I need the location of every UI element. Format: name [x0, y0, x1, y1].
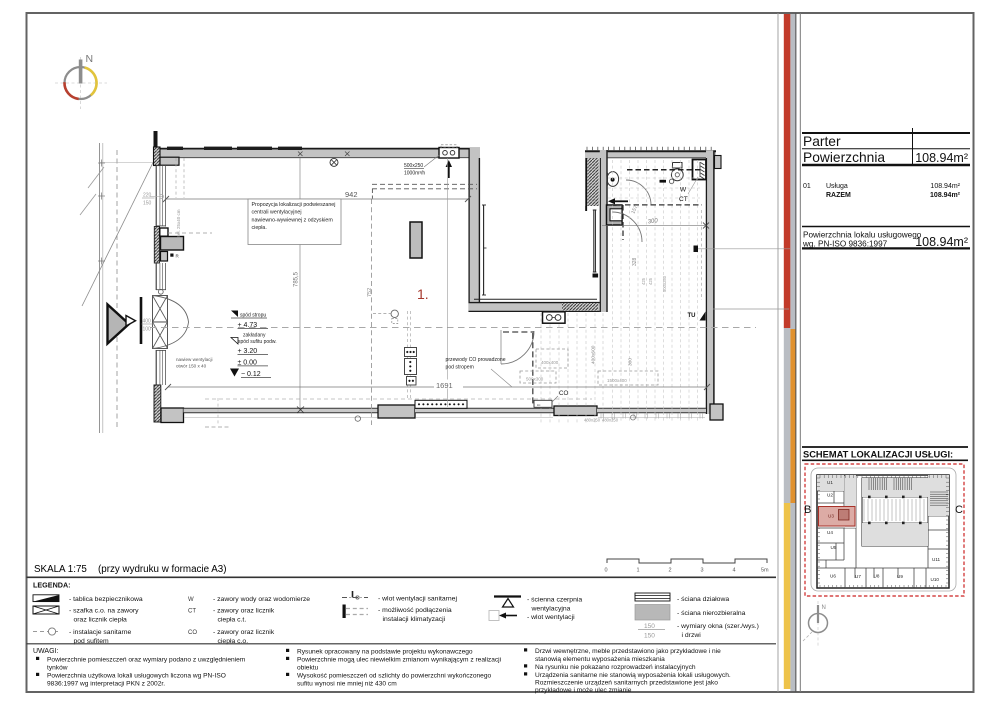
svg-text:Powierzchnia lokalu usługowego: Powierzchnia lokalu usługowego [803, 231, 922, 240]
svg-text:Urządzenia sanitarne nie stano: Urządzenia sanitarne nie stanowią wyposa… [535, 672, 731, 679]
svg-text:ciepła.: ciepła. [252, 225, 267, 231]
svg-text:- zawory wody oraz wodomierze: - zawory wody oraz wodomierze [213, 596, 310, 603]
svg-text:- ściana nierozbieralna: - ściana nierozbieralna [677, 610, 746, 617]
svg-text:W: W [188, 597, 194, 603]
svg-text:nawiewno-wywiewnej z odzyskiem: nawiewno-wywiewnej z odzyskiem [252, 217, 334, 223]
svg-text:1500x400: 1500x400 [607, 378, 627, 383]
svg-text:300: 300 [628, 358, 634, 366]
svg-text:TU: TU [688, 313, 696, 319]
svg-text:instalacji klimatyzacji: instalacji klimatyzacji [383, 616, 446, 623]
svg-text:942: 942 [345, 190, 358, 199]
svg-text:- szafka c.o. na zawory: - szafka c.o. na zawory [69, 608, 139, 615]
svg-text:przykładowe i może ulec zmiani: przykładowe i może ulec zmianie [535, 687, 632, 694]
svg-text:400: 400 [143, 319, 152, 325]
svg-text:- wymiary okna (szer./wys.): - wymiary okna (szer./wys.) [677, 623, 759, 630]
svg-text:oraz licznik ciepła: oraz licznik ciepła [74, 617, 127, 624]
svg-text:Usługa: Usługa [826, 183, 848, 190]
svg-text:100: 100 [143, 327, 152, 333]
svg-text:1000m³/h: 1000m³/h [404, 171, 425, 177]
svg-text:500x300: 500x300 [526, 377, 544, 382]
svg-text:wg. PN-ISO 9836:1997: wg. PN-ISO 9836:1997 [802, 240, 888, 249]
svg-text:108.94m²: 108.94m² [915, 235, 968, 249]
svg-text:Powierzchnie pomieszczeń oraz: Powierzchnie pomieszczeń oraz wymiary po… [47, 657, 246, 664]
svg-text:Na rysunku nie pokazano rozpro: Na rysunku nie pokazano rozprowadzeń ins… [535, 664, 696, 671]
svg-text:N: N [86, 53, 94, 65]
svg-text:1: 1 [637, 568, 640, 574]
svg-text:0: 0 [605, 568, 608, 574]
svg-text:U2: U2 [827, 493, 833, 498]
svg-text:Powierzchnia użytkowa lokali u: Powierzchnia użytkowa lokali usługowych … [47, 673, 226, 680]
svg-text:nawiew wentylacji: nawiew wentylacji [176, 357, 213, 362]
svg-text:150: 150 [143, 201, 152, 207]
svg-text:Drzwi wewnętrzne, meble przeds: Drzwi wewnętrzne, meble przedstawiono ja… [535, 648, 721, 655]
svg-text:Rysunek opracowany na podstawi: Rysunek opracowany na podstawie projektu… [297, 649, 473, 656]
svg-text:Powierzchnie mogą ulec niewiel: Powierzchnie mogą ulec niewielkim zmiano… [297, 657, 502, 664]
svg-text:przewody CO prowadzone: przewody CO prowadzone [446, 357, 506, 363]
svg-text:Parter: Parter [803, 134, 841, 149]
svg-text:+ 3.20: + 3.20 [238, 348, 258, 355]
svg-text:spód sufitu podw.: spód sufitu podw. [238, 339, 277, 345]
svg-text:U3: U3 [828, 514, 834, 519]
svg-text:i drzwi: i drzwi [682, 632, 702, 639]
svg-text:U6: U6 [830, 574, 836, 579]
svg-text:108.94m²: 108.94m² [915, 151, 968, 165]
svg-text:400x400: 400x400 [541, 360, 559, 365]
svg-text:4: 4 [733, 568, 736, 574]
svg-text:- możliwość podłączenia: - możliwość podłączenia [378, 607, 452, 614]
svg-text:Bel. 25x40 cm: Bel. 25x40 cm [176, 209, 181, 238]
svg-text:- ścienna czerpnia: - ścienna czerpnia [527, 597, 582, 604]
svg-text:SKALA 1:75: SKALA 1:75 [34, 564, 87, 575]
svg-text:U5: U5 [831, 545, 837, 550]
svg-text:- wlot wentylacji: - wlot wentylacji [527, 614, 575, 621]
svg-text:U8: U8 [874, 574, 880, 579]
svg-text:CT: CT [679, 196, 688, 203]
svg-text:108.94m²: 108.94m² [930, 192, 961, 199]
svg-text:− 0.12: − 0.12 [241, 371, 261, 378]
svg-text:1.: 1. [417, 286, 429, 302]
svg-text:wentylacyjna: wentylacyjna [531, 606, 571, 613]
svg-text:± 0.00: ± 0.00 [238, 360, 258, 367]
svg-text:220: 220 [143, 193, 152, 199]
svg-text:CO: CO [188, 630, 197, 636]
svg-text:C: C [955, 504, 963, 516]
svg-text:150: 150 [644, 633, 655, 640]
svg-text:Wysokość pomieszczeń od szlich: Wysokość pomieszczeń od szlichty do powi… [297, 673, 492, 680]
svg-text:9836:1997 wg interpretacji PKN: 9836:1997 wg interpretacji PKN z 2002r. [47, 681, 165, 688]
svg-text:425: 425 [641, 277, 646, 285]
svg-text:CT: CT [188, 609, 196, 615]
svg-text:centrali wentylacyjnej: centrali wentylacyjnej [252, 210, 302, 216]
svg-text:▪▪▪: ▪▪▪ [537, 403, 540, 407]
svg-text:pod stropem: pod stropem [446, 365, 474, 371]
svg-text:752: 752 [367, 288, 373, 297]
svg-text:328: 328 [632, 257, 638, 266]
svg-text:N: N [822, 605, 826, 611]
svg-text:sufitu wynosi nie mniej niż 43: sufitu wynosi nie mniej niż 430 cm [297, 681, 397, 688]
svg-text:spód stropu: spód stropu [240, 313, 266, 319]
svg-text:ciepła c.t.: ciepła c.t. [218, 617, 247, 624]
svg-text:- zawory oraz licznik: - zawory oraz licznik [213, 629, 275, 636]
svg-text:3: 3 [701, 568, 704, 574]
svg-text:CO: CO [559, 390, 568, 397]
svg-text:SCHEMAT LOKALIZACJI USŁUGI:: SCHEMAT LOKALIZACJI USŁUGI: [803, 449, 953, 459]
svg-text:otwór 150 x 40: otwór 150 x 40 [176, 364, 207, 369]
svg-text:LEGENDA:: LEGENDA: [33, 581, 71, 590]
svg-text:- instalacje sanitarne: - instalacje sanitarne [69, 629, 132, 636]
svg-text:5m: 5m [761, 568, 769, 574]
svg-text:U11: U11 [932, 557, 941, 562]
svg-text:- ściana działowa: - ściana działowa [677, 596, 729, 603]
svg-text:Rozmieszczenie urządzeń sanita: Rozmieszczenie urządzeń sanitarnych prze… [535, 680, 718, 687]
svg-text:U7: U7 [855, 574, 861, 579]
svg-text:108.94m²: 108.94m² [930, 183, 960, 190]
svg-text:W: W [680, 187, 687, 194]
svg-text:Powierzchnia: Powierzchnia [803, 150, 885, 165]
svg-text:+ 4.73: + 4.73 [238, 322, 258, 329]
svg-text:150: 150 [644, 623, 655, 630]
svg-text:500x250: 500x250 [662, 275, 667, 292]
svg-text:01: 01 [803, 183, 811, 190]
svg-text:U1: U1 [827, 480, 833, 485]
svg-text:Propozycja lokalizacji podwies: Propozycja lokalizacji podwieszanej [252, 202, 336, 208]
svg-text:UWAGI:: UWAGI: [33, 648, 58, 655]
svg-text:480x250: 480x250 [602, 418, 619, 423]
svg-text:1691: 1691 [436, 381, 453, 390]
svg-text:2: 2 [669, 568, 672, 574]
svg-text:425: 425 [648, 277, 653, 285]
svg-text:stanowią elementu wyposażenia: stanowią elementu wyposażenia mieszkania [535, 656, 665, 663]
svg-text:obiektu: obiektu [297, 665, 319, 672]
svg-text:400x600: 400x600 [591, 345, 597, 364]
svg-text:(przy wydruku w formacie A3): (przy wydruku w formacie A3) [98, 564, 226, 575]
svg-text:480x250: 480x250 [584, 418, 601, 423]
svg-text:785,5: 785,5 [294, 271, 300, 287]
svg-text:tynków: tynków [47, 665, 68, 672]
svg-text:zakładany: zakładany [243, 333, 266, 339]
svg-text:U4: U4 [827, 530, 833, 535]
svg-text:- zawory oraz licznik: - zawory oraz licznik [213, 608, 275, 615]
svg-text:RAZEM: RAZEM [826, 192, 851, 199]
svg-text:- wlot wentylacji sanitarnej: - wlot wentylacji sanitarnej [378, 596, 457, 603]
svg-text:U9: U9 [897, 574, 903, 579]
svg-text:- tablica bezpiecznikowa: - tablica bezpiecznikowa [69, 596, 143, 603]
svg-text:B: B [804, 504, 811, 516]
svg-text:U10: U10 [931, 577, 940, 582]
